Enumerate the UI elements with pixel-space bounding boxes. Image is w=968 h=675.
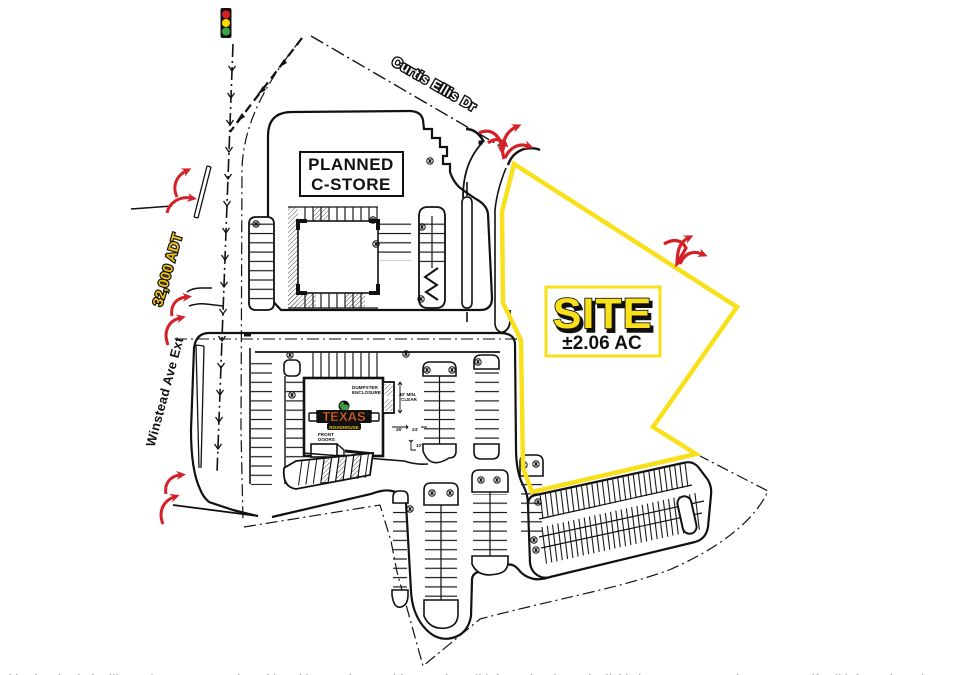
svg-text:CLEAR: CLEAR [401, 397, 418, 402]
svg-text:PLANNED: PLANNED [308, 155, 394, 174]
svg-text:ENCLOSURE: ENCLOSURE [352, 390, 381, 395]
svg-text:10': 10' [416, 443, 422, 448]
svg-text:±2.06 AC: ±2.06 AC [562, 333, 642, 354]
svg-text:26': 26' [396, 427, 402, 432]
svg-text:SITE: SITE [553, 290, 653, 338]
svg-text:C-STORE: C-STORE [311, 175, 391, 194]
svg-text:TEXAS: TEXAS [322, 409, 366, 424]
svg-text:24': 24' [412, 427, 418, 432]
svg-text:DOORS: DOORS [318, 437, 335, 442]
svg-text:ROADHOUSE: ROADHOUSE [329, 425, 358, 430]
